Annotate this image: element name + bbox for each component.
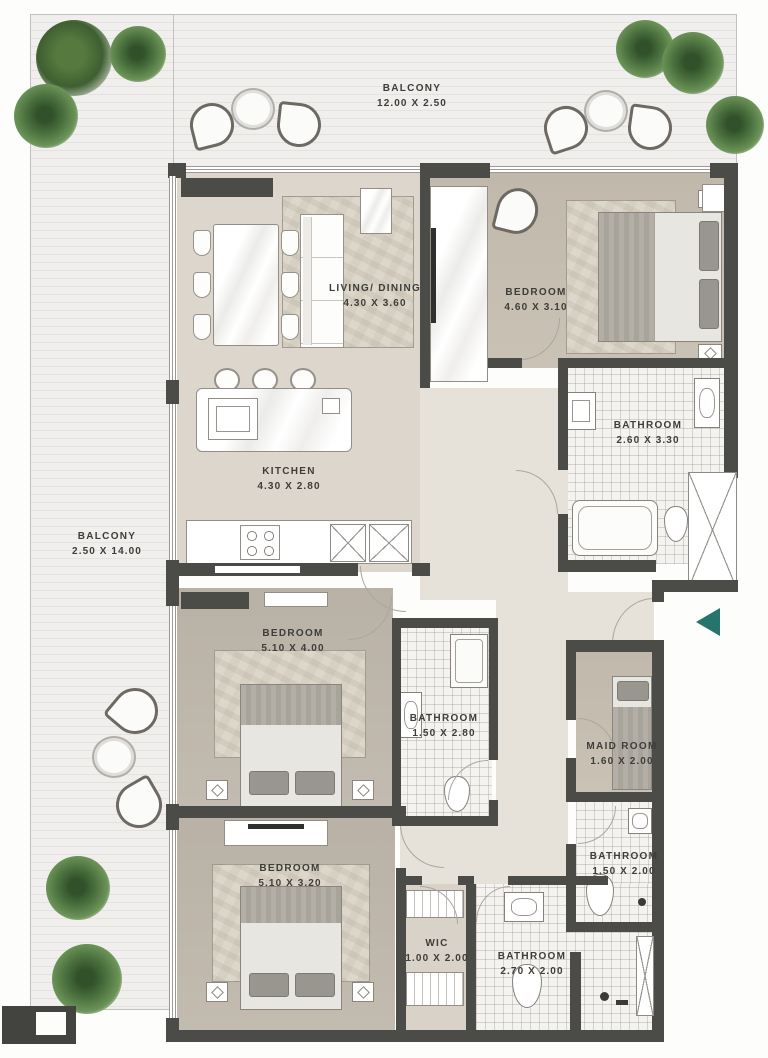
column-block-inset: [36, 1012, 66, 1035]
wall: [392, 618, 401, 826]
wall-recess: [215, 566, 300, 573]
room-label-maid-room: MAID ROOM1.60 X 2.00: [586, 739, 657, 769]
bed: [598, 212, 722, 342]
room-label-wic: WIC1.00 X 2.00: [405, 936, 468, 966]
floor-drain: [600, 992, 609, 1001]
palm-plant: [14, 84, 78, 148]
palm-plant: [46, 856, 110, 920]
wall: [396, 876, 422, 885]
dining-chair: [281, 272, 299, 298]
wall: [558, 358, 738, 368]
bathroom-sink: [504, 892, 544, 922]
entry-arrow: [696, 608, 720, 636]
wall: [489, 618, 498, 760]
room-label-bathroom-3: BATHROOM1.50 X 2.00: [590, 849, 659, 879]
room-label-balcony-top: BALCONY12.00 X 2.50: [377, 81, 447, 111]
dining-chair: [193, 314, 211, 340]
washing-machine: [566, 392, 596, 430]
wall: [724, 163, 738, 478]
wardrobe: [430, 186, 488, 382]
floor-drain: [638, 898, 646, 906]
cooktop: [240, 525, 280, 560]
dining-table: [213, 224, 279, 346]
wall: [566, 640, 576, 720]
room-label-bathroom-2: BATHROOM1.50 X 2.80: [410, 711, 479, 741]
nightstand: [206, 780, 228, 800]
nightstand: [352, 982, 374, 1002]
duct-x-box: [636, 936, 654, 1016]
sink-basin: [216, 406, 250, 432]
wall: [420, 172, 430, 388]
wall: [392, 816, 498, 826]
nightstand: [352, 780, 374, 800]
pillow: [617, 681, 649, 701]
wall: [488, 358, 522, 368]
wall: [558, 560, 656, 572]
dining-chair: [281, 314, 299, 340]
wall: [412, 563, 430, 576]
wall: [566, 922, 664, 932]
appliance: [330, 524, 366, 562]
wall: [392, 618, 498, 628]
shower: [450, 634, 488, 688]
bed: [240, 684, 342, 810]
wall: [652, 580, 738, 592]
room-label-bathroom-4: BATHROOM2.70 X 2.00: [498, 949, 567, 979]
bedroom-2-dresser: [264, 592, 328, 607]
wic-wardrobe: [406, 972, 464, 1006]
room-label-kitchen: KITCHEN4.30 X 2.80: [257, 464, 320, 494]
room-label-bedroom-1: BEDROOM4.60 X 3.10: [504, 285, 567, 315]
room-label-bedroom-2: BEDROOM5.10 X 4.00: [261, 626, 324, 656]
wall: [166, 806, 406, 818]
wall: [652, 592, 664, 602]
appliance: [369, 524, 409, 562]
wall: [420, 163, 490, 178]
outdoor-table: [231, 88, 275, 130]
living-bulkhead: [181, 178, 273, 197]
dining-chair: [193, 230, 211, 256]
palm-plant: [706, 96, 764, 154]
side-table: [360, 188, 392, 234]
outdoor-table: [584, 90, 628, 132]
pillow: [699, 279, 719, 329]
shower-partition: [570, 952, 581, 1030]
room-label-living-dining: LIVING/ DINING4.30 X 3.60: [329, 281, 421, 311]
floor-plan: BALCONY12.00 X 2.50 LIVING/ DINING4.30 X…: [0, 0, 768, 1058]
bed: [240, 886, 342, 1010]
nightstand: [206, 982, 228, 1002]
room-label-bedroom-3: BEDROOM5.10 X 3.20: [258, 861, 321, 891]
dining-chair: [281, 230, 299, 256]
blanket: [241, 685, 341, 725]
wall: [566, 640, 664, 652]
room-label-bathroom-1: BATHROOM2.60 X 3.30: [614, 418, 683, 448]
bedroom-2-wardrobe: [181, 592, 249, 609]
bathroom-sink: [628, 808, 652, 834]
palm-plant: [110, 26, 166, 82]
wall: [558, 366, 568, 470]
floor-tap: [616, 1000, 628, 1005]
wall: [566, 792, 664, 802]
pillow: [295, 771, 335, 795]
blanket: [599, 213, 655, 341]
tv-panel: [248, 824, 304, 829]
island-hob: [322, 398, 340, 414]
dining-chair: [193, 272, 211, 298]
tv-panel: [431, 228, 436, 323]
palm-plant: [662, 32, 724, 94]
blanket: [241, 887, 341, 923]
bathtub: [572, 500, 658, 556]
wall: [166, 1030, 664, 1042]
wall: [566, 844, 576, 926]
balcony-left-area: [30, 14, 174, 1010]
pillow: [295, 973, 335, 997]
bathroom-sink: [694, 378, 720, 428]
room-label-balcony-left: BALCONY2.50 X 14.00: [72, 529, 142, 559]
pillow: [249, 973, 289, 997]
wall: [166, 380, 179, 404]
palm-plant: [52, 944, 122, 1014]
outdoor-table: [92, 736, 136, 778]
maid-bed: [612, 676, 652, 790]
pillow: [699, 221, 719, 271]
duct-x-box: [688, 472, 737, 588]
pillow: [249, 771, 289, 795]
